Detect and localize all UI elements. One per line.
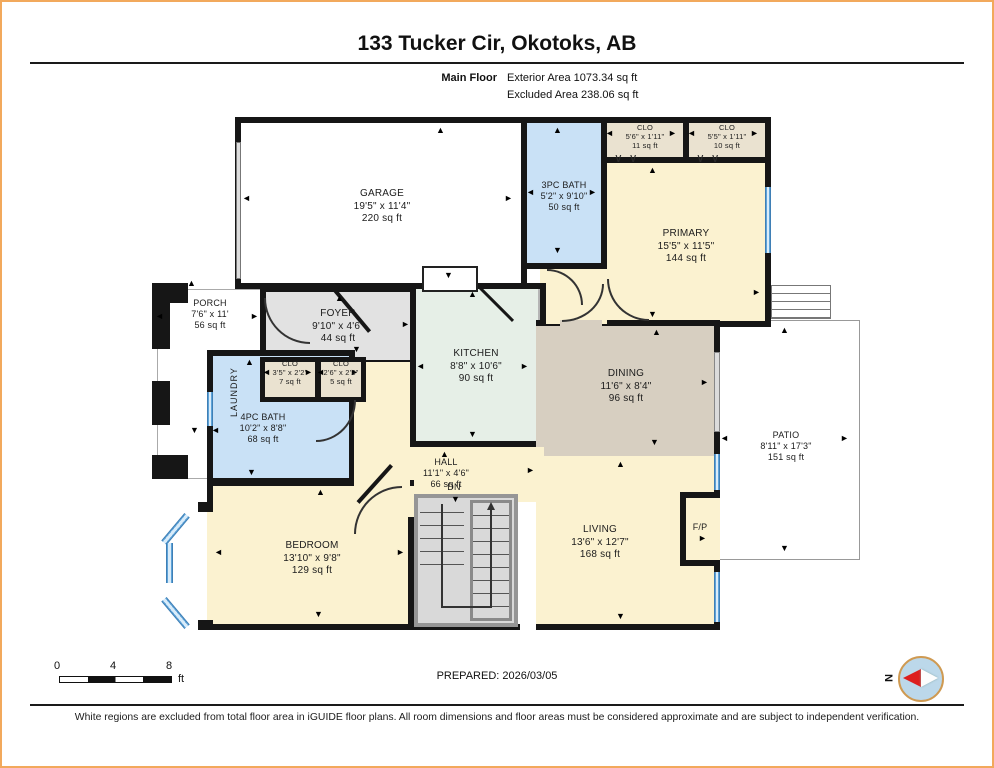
dimension-arrow-icon: [780, 326, 789, 335]
window: [714, 572, 720, 622]
dimension-arrow-icon: [401, 320, 410, 329]
bay-window: [166, 543, 173, 583]
room-name: F/P: [682, 522, 718, 533]
room-area: 96 sq ft: [564, 393, 688, 406]
room-label-closet-primary-left: CLO 5'6" x 1'11" 11 sq ft: [603, 123, 687, 150]
room-area: 144 sq ft: [602, 253, 770, 266]
room-name: PATIO: [726, 430, 846, 441]
room-area: 129 sq ft: [252, 565, 372, 578]
bay-window-stub: [198, 502, 212, 512]
compass-north-label: N: [882, 674, 894, 682]
dimension-arrow-icon: [780, 544, 789, 553]
stair-guide-line: [441, 606, 491, 608]
room-label-primary: PRIMARY 15'5" x 11'5" 144 sq ft: [602, 228, 770, 266]
floor-label: Main Floor: [302, 70, 497, 87]
room-area: 50 sq ft: [514, 202, 614, 213]
dimension-arrow-icon: [648, 166, 657, 175]
room-name: PORCH: [160, 298, 260, 309]
bay-window-opening: [207, 512, 213, 620]
room-label-garage: GARAGE 19'5" x 11'4" 220 sq ft: [292, 188, 472, 226]
dimension-arrow-icon: [444, 271, 453, 280]
room-label-bedroom: BEDROOM 13'10" x 9'8" 129 sq ft: [252, 540, 372, 578]
bay-window-stub: [198, 620, 212, 630]
room-name: LIVING: [540, 524, 660, 537]
room-area: 11 sq ft: [603, 141, 687, 150]
dimension-arrow-icon: [553, 126, 562, 135]
scale-tick-0: 0: [54, 660, 60, 672]
room-dims: 15'5" x 11'5": [602, 241, 770, 254]
room-label-closet-primary-right: CLO 5'5" x 1'11" 10 sq ft: [685, 123, 769, 150]
dimension-arrow-icon: [700, 378, 709, 387]
stair-direction-line: [490, 508, 492, 608]
dimension-arrow-icon: [242, 194, 251, 203]
scale-tick-8: 8: [166, 660, 172, 672]
bifold-door-icon: [614, 152, 676, 164]
room-label-dining: DINING 11'6" x 8'4" 96 sq ft: [564, 368, 688, 406]
room-label-closet-foyer-right: CLO 2'6" x 2'2" 5 sq ft: [314, 359, 368, 386]
compass-icon: [898, 656, 944, 702]
room-name: CLO: [603, 123, 687, 132]
dimension-arrow-icon: [190, 426, 199, 435]
room-dims: 11'6" x 8'4": [564, 381, 688, 394]
room-name: GARAGE: [292, 188, 472, 201]
dimension-arrow-icon: [648, 310, 657, 319]
room-dims: 8'8" x 10'6": [414, 361, 538, 374]
room-area: 68 sq ft: [208, 434, 318, 445]
dimension-arrow-icon: [553, 246, 562, 255]
room-area: 90 sq ft: [414, 373, 538, 386]
room-name: CLO: [314, 359, 368, 368]
stairs-dn-label: DN: [440, 482, 468, 493]
dimension-arrow-icon: [526, 466, 535, 475]
dimension-arrow-icon: [214, 548, 223, 557]
room-dims: 11'1" x 4'6": [396, 468, 496, 479]
room-dims: 13'10" x 9'8": [252, 553, 372, 566]
room-name: 4PC BATH: [208, 412, 318, 423]
dimension-arrow-icon: [352, 345, 361, 354]
dimension-arrow-icon: [247, 468, 256, 477]
dimension-arrow-icon: [245, 358, 254, 367]
room-label-patio: PATIO 8'11" x 17'3" 151 sq ft: [726, 430, 846, 463]
room-label-3pc-bath: 3PC BATH 5'2" x 9'10" 50 sq ft: [514, 180, 614, 213]
bay-window: [161, 513, 190, 545]
room-area: 220 sq ft: [292, 213, 472, 226]
fireplace-label: F/P: [682, 522, 718, 533]
porch-post: [152, 381, 170, 425]
room-area: 10 sq ft: [685, 141, 769, 150]
wall-segment: [521, 283, 546, 289]
window: [714, 454, 720, 490]
area-summary: Exterior Area 1073.34 sq ft Excluded Are…: [507, 70, 747, 104]
room-label-foyer: FOYER 9'10" x 4'6" 44 sq ft: [282, 308, 394, 346]
footer-divider: [30, 704, 964, 706]
dimension-arrow-icon: [436, 126, 445, 135]
dimension-arrow-icon: [187, 279, 196, 288]
dimension-arrow-icon: [698, 534, 707, 543]
header-divider: [30, 62, 964, 64]
exterior-area: Exterior Area 1073.34 sq ft: [507, 70, 747, 87]
compass-needle-south: [921, 669, 938, 687]
room-area: 44 sq ft: [282, 333, 394, 346]
dimension-arrow-icon: [504, 194, 513, 203]
room-area: 7 sq ft: [260, 377, 320, 386]
room-name: CLO: [685, 123, 769, 132]
bifold-door-icon: [696, 152, 758, 164]
dimension-arrow-icon: [652, 328, 661, 337]
room-dims: 3'5" x 2'2": [260, 368, 320, 377]
dimension-arrow-icon: [468, 290, 477, 299]
dimension-arrow-icon: [616, 612, 625, 621]
room-dims: 13'6" x 12'7": [540, 537, 660, 550]
room-name: PRIMARY: [602, 228, 770, 241]
room-dims: 2'6" x 2'2": [314, 368, 368, 377]
room-name: BEDROOM: [252, 540, 372, 553]
dimension-arrow-icon: [396, 548, 405, 557]
room-name: 3PC BATH: [514, 180, 614, 191]
dimension-arrow-icon: [468, 430, 477, 439]
scale-tick-4: 4: [110, 660, 116, 672]
patio-door: [714, 352, 720, 432]
dimension-arrow-icon: [335, 294, 344, 303]
room-area: 56 sq ft: [160, 320, 260, 331]
room-name: HALL: [396, 457, 496, 468]
room-label-porch: PORCH 7'6" x 11' 56 sq ft: [160, 298, 260, 331]
wall-segment: [540, 283, 546, 324]
dimension-arrow-icon: [451, 495, 460, 504]
room-dims: 19'5" x 11'4": [292, 201, 472, 214]
porch-post: [152, 455, 188, 479]
room-name: CLO: [260, 359, 320, 368]
room-dims: 5'6" x 1'11": [603, 132, 687, 141]
room-label-kitchen: KITCHEN 8'8" x 10'6" 90 sq ft: [414, 348, 538, 386]
room-label-living: LIVING 13'6" x 12'7" 168 sq ft: [540, 524, 660, 562]
deck-steps: [771, 285, 831, 319]
compass-needle-north: [903, 669, 921, 687]
room-dims: 9'10" x 4'6": [282, 321, 394, 334]
stairs-label: DN: [440, 482, 468, 493]
room-name: FOYER: [282, 308, 394, 321]
dimension-arrow-icon: [316, 488, 325, 497]
disclaimer-text: White regions are excluded from total fl…: [2, 712, 992, 723]
room-label-closet-foyer-left: CLO 3'5" x 2'2" 7 sq ft: [260, 359, 320, 386]
dimension-arrow-icon: [650, 438, 659, 447]
room-area: 5 sq ft: [314, 377, 368, 386]
room-area: 168 sq ft: [540, 549, 660, 562]
floorplan-page: 133 Tucker Cir, Okotoks, AB Main Floor E…: [0, 0, 994, 768]
stair-guide-line: [441, 504, 443, 608]
room-dims: 10'2" x 8'8": [208, 423, 318, 434]
stair-up-arrow-icon: [487, 502, 495, 510]
dimension-arrow-icon: [616, 460, 625, 469]
room-name: KITCHEN: [414, 348, 538, 361]
dimension-arrow-icon: [314, 610, 323, 619]
room-dims: 5'5" x 1'11": [685, 132, 769, 141]
excluded-area: Excluded Area 238.06 sq ft: [507, 87, 747, 104]
room-name: DINING: [564, 368, 688, 381]
dimension-arrow-icon: [752, 288, 761, 297]
room-dims: 5'2" x 9'10": [514, 191, 614, 202]
room-label-4pc-bath: 4PC BATH 10'2" x 8'8" 68 sq ft: [208, 412, 318, 445]
bay-window: [161, 597, 190, 629]
scale-bar: [59, 676, 172, 683]
garage-door: [236, 142, 241, 279]
room-area: 151 sq ft: [726, 452, 846, 463]
page-title: 133 Tucker Cir, Okotoks, AB: [2, 32, 992, 56]
room-dims: 8'11" x 17'3": [726, 441, 846, 452]
room-dims: 7'6" x 11': [160, 309, 260, 320]
